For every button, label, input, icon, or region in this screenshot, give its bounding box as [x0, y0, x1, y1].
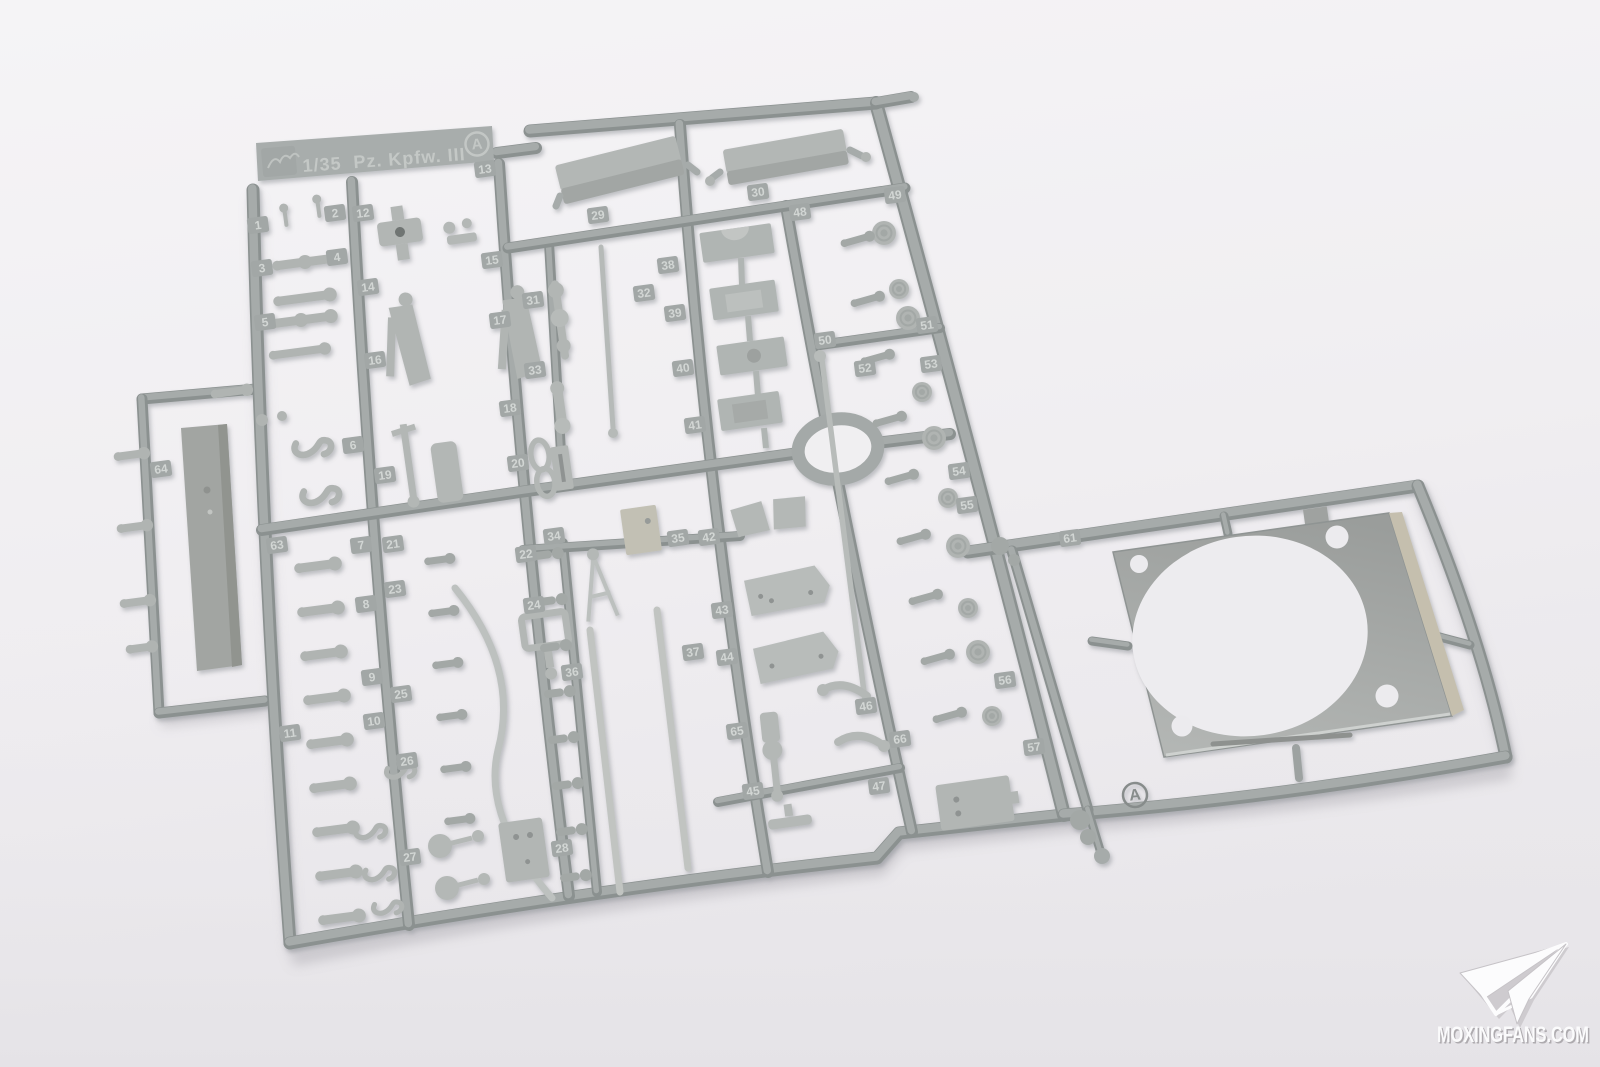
svg-text:32: 32 — [636, 285, 651, 301]
svg-text:38: 38 — [660, 257, 675, 273]
svg-text:31: 31 — [525, 292, 540, 308]
svg-text:48: 48 — [792, 204, 807, 220]
svg-text:53: 53 — [923, 356, 938, 372]
svg-text:34: 34 — [546, 528, 561, 544]
svg-text:54: 54 — [951, 463, 966, 479]
svg-text:41: 41 — [687, 417, 702, 433]
svg-text:20: 20 — [510, 455, 525, 471]
svg-text:42: 42 — [701, 529, 716, 545]
svg-text:14: 14 — [360, 279, 375, 295]
svg-text:50: 50 — [817, 332, 832, 348]
svg-text:17: 17 — [492, 312, 507, 328]
svg-text:A: A — [471, 136, 483, 154]
svg-text:49: 49 — [887, 187, 902, 203]
svg-text:43: 43 — [714, 602, 729, 618]
svg-text:26: 26 — [399, 753, 414, 769]
svg-text:29: 29 — [590, 207, 605, 223]
svg-text:47: 47 — [871, 778, 886, 794]
svg-text:61: 61 — [1062, 530, 1077, 546]
svg-text:30: 30 — [750, 184, 765, 200]
svg-text:64: 64 — [153, 461, 168, 477]
svg-text:MOXINGFANS.COM: MOXINGFANS.COM — [1437, 1022, 1589, 1047]
svg-text:13: 13 — [477, 161, 492, 177]
svg-text:35: 35 — [670, 530, 685, 546]
svg-text:28: 28 — [554, 840, 569, 856]
svg-text:24: 24 — [526, 597, 541, 613]
svg-text:46: 46 — [858, 698, 873, 714]
svg-text:19: 19 — [377, 467, 392, 483]
svg-text:15: 15 — [484, 252, 499, 268]
svg-text:40: 40 — [675, 360, 690, 376]
svg-text:12: 12 — [355, 205, 370, 221]
svg-text:25: 25 — [393, 686, 408, 702]
svg-text:66: 66 — [892, 731, 907, 747]
svg-text:63: 63 — [269, 537, 284, 553]
svg-text:10: 10 — [366, 713, 381, 729]
svg-text:51: 51 — [919, 317, 934, 333]
svg-text:18: 18 — [502, 400, 517, 416]
svg-text:37: 37 — [685, 644, 700, 660]
svg-text:55: 55 — [959, 497, 974, 513]
svg-text:52: 52 — [857, 360, 872, 376]
svg-text:33: 33 — [527, 362, 542, 378]
svg-text:57: 57 — [1026, 739, 1041, 755]
svg-text:44: 44 — [719, 649, 734, 665]
svg-text:39: 39 — [667, 305, 682, 321]
svg-text:27: 27 — [402, 849, 417, 865]
svg-text:11: 11 — [283, 725, 298, 741]
svg-text:36: 36 — [564, 664, 579, 680]
svg-text:16: 16 — [367, 352, 382, 368]
svg-text:56: 56 — [997, 672, 1012, 688]
svg-text:45: 45 — [745, 783, 760, 799]
svg-text:23: 23 — [387, 581, 402, 597]
svg-text:22: 22 — [518, 546, 533, 562]
svg-text:65: 65 — [729, 723, 744, 739]
svg-text:A: A — [1128, 786, 1142, 804]
svg-text:21: 21 — [385, 536, 400, 552]
